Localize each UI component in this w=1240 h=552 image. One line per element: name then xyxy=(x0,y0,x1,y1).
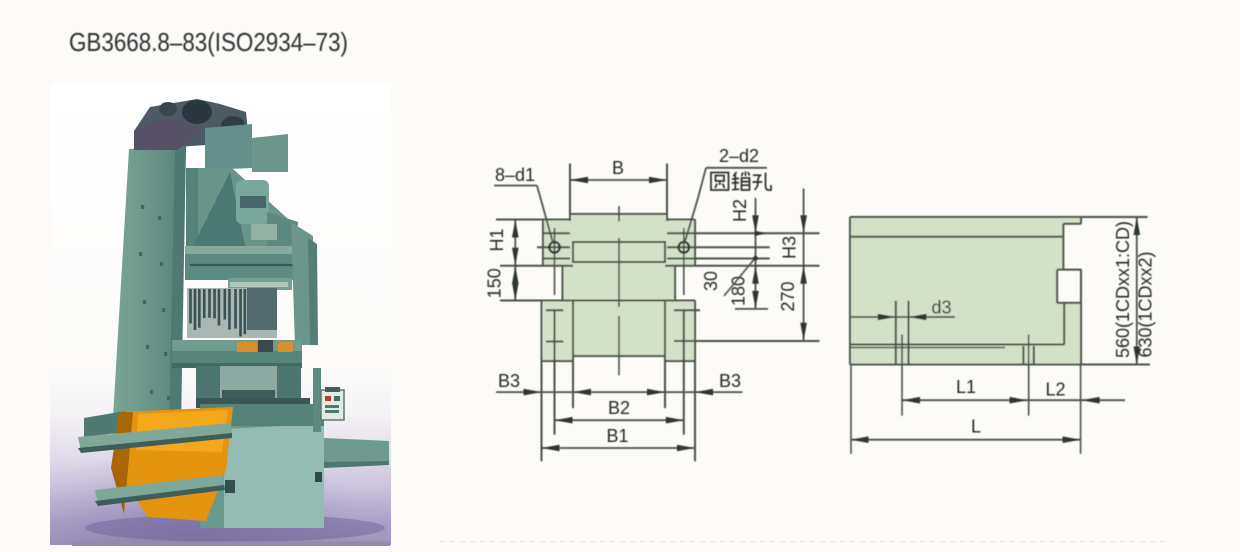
svg-text:30: 30 xyxy=(701,271,721,291)
svg-text:H3: H3 xyxy=(780,236,800,259)
svg-text:L1: L1 xyxy=(956,377,976,397)
svg-text:H2: H2 xyxy=(730,199,750,222)
svg-text:180: 180 xyxy=(729,276,749,306)
svg-text:8–d1: 8–d1 xyxy=(495,165,535,185)
svg-text:2–d2: 2–d2 xyxy=(719,146,759,166)
svg-text:B2: B2 xyxy=(608,398,630,418)
svg-text:B: B xyxy=(612,158,624,178)
svg-text:GB3668.8–83(ISO2934–73): GB3668.8–83(ISO2934–73) xyxy=(69,27,348,57)
svg-text:630(1CDxx2): 630(1CDxx2) xyxy=(1136,251,1156,357)
svg-text:B1: B1 xyxy=(606,426,628,446)
svg-text:L2: L2 xyxy=(1045,380,1065,400)
svg-text:270: 270 xyxy=(778,281,798,311)
svg-text:H1: H1 xyxy=(487,228,507,251)
svg-text:B3: B3 xyxy=(498,371,520,391)
svg-text:d3: d3 xyxy=(931,298,951,318)
svg-text:560(1CDxx1:CD): 560(1CDxx1:CD) xyxy=(1113,221,1133,358)
svg-text:B3: B3 xyxy=(719,371,741,391)
svg-text:L: L xyxy=(971,417,981,437)
svg-text:150: 150 xyxy=(485,268,505,298)
